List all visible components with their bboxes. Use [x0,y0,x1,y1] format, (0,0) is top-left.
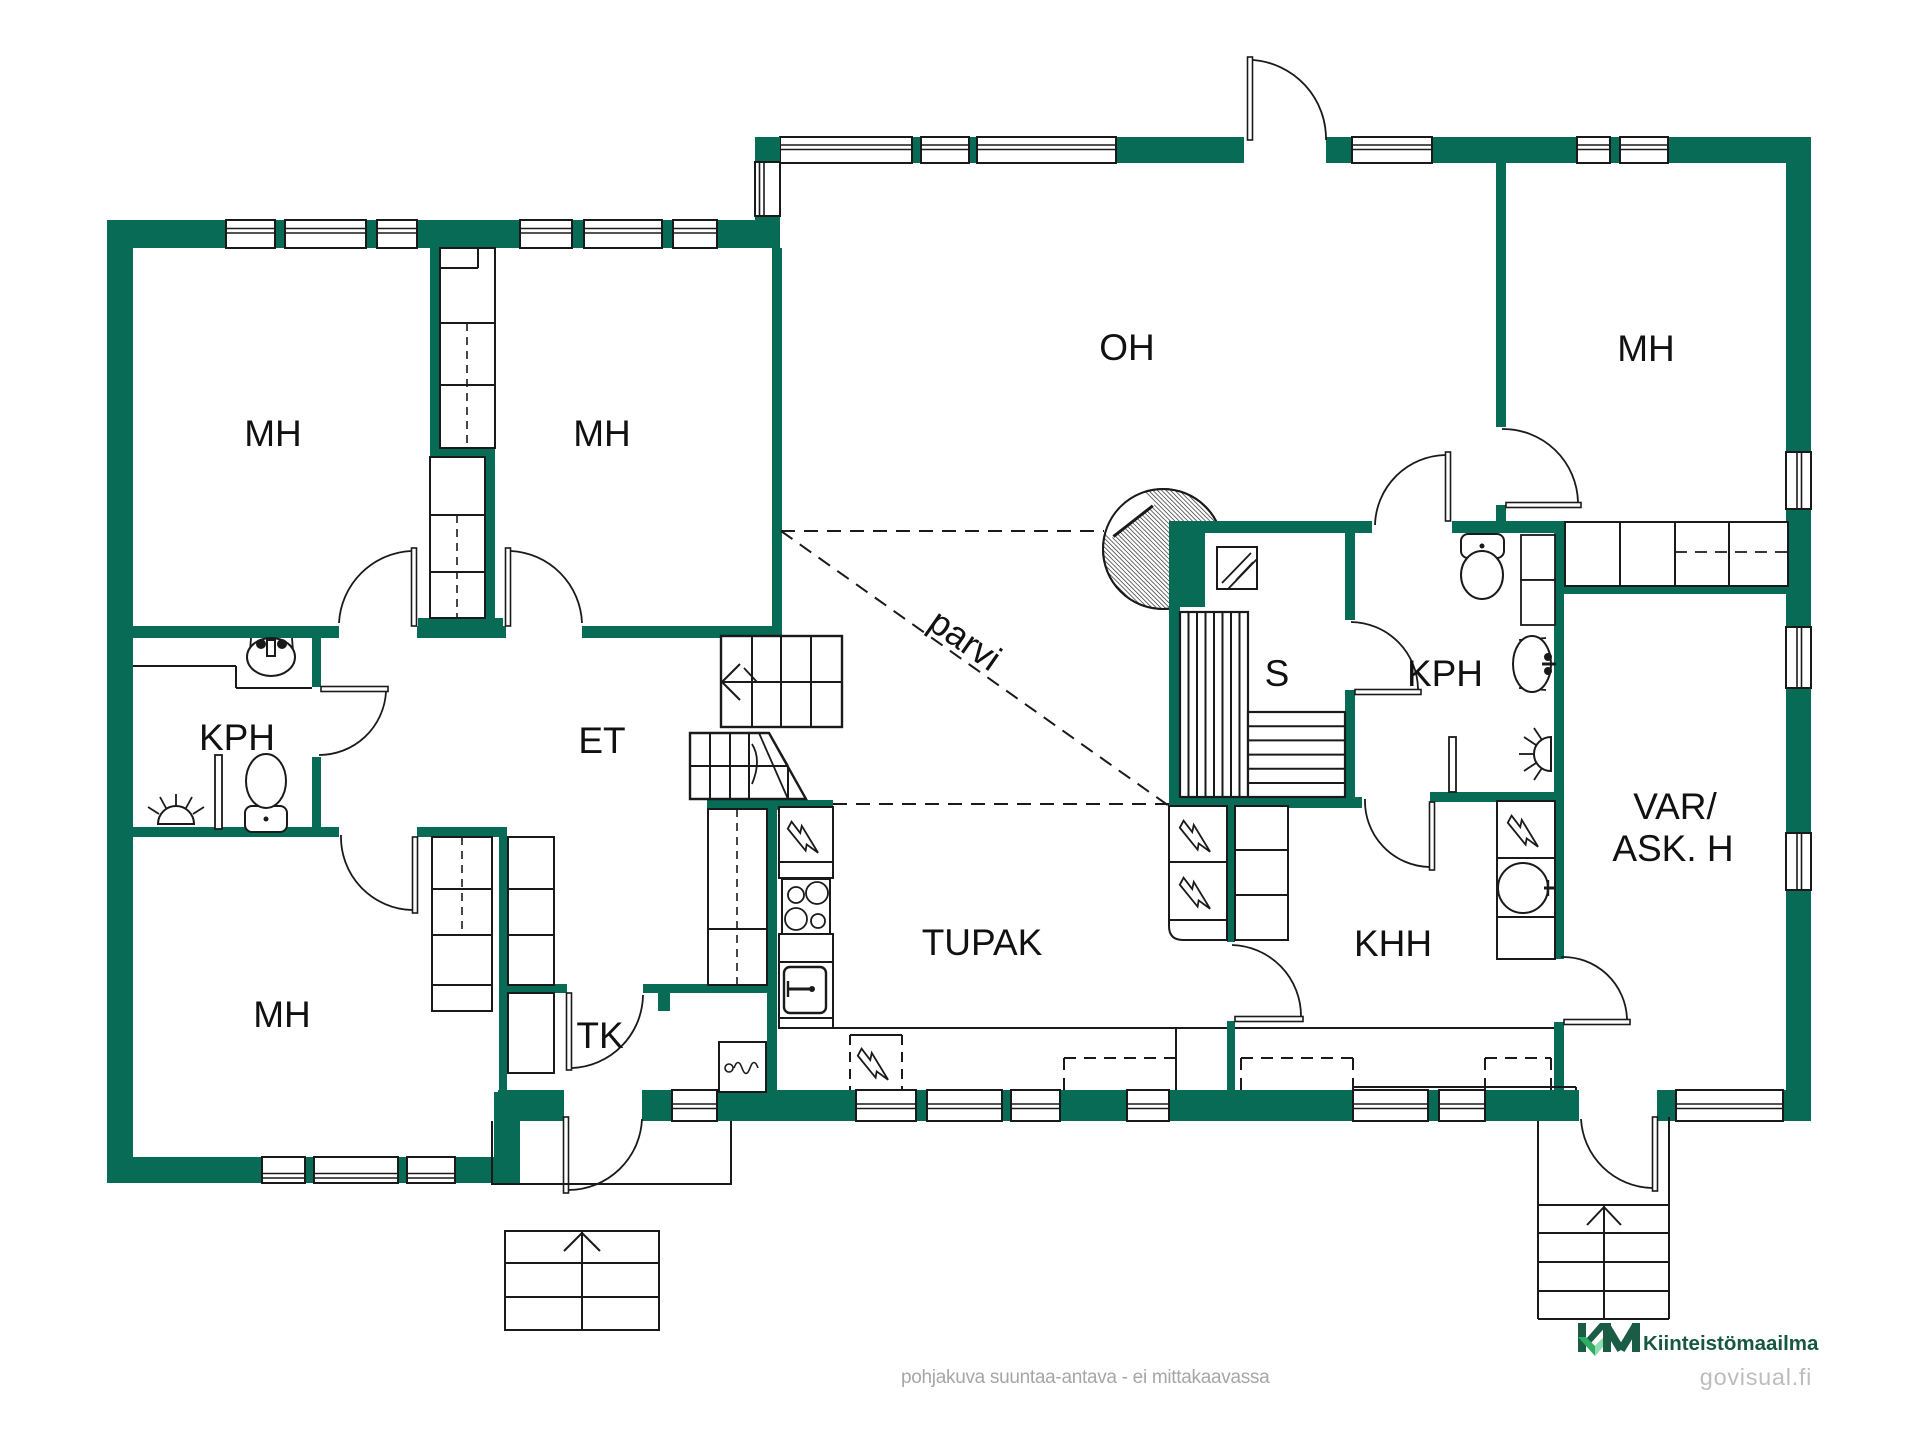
svg-text:govisual.fi: govisual.fi [1700,1364,1812,1390]
svg-text:MH: MH [253,994,311,1035]
svg-text:ET: ET [578,720,625,761]
svg-text:VAR/: VAR/ [1633,786,1717,827]
svg-text:MH: MH [244,413,302,454]
svg-text:ASK. H: ASK. H [1612,828,1733,869]
svg-text:MH: MH [573,413,631,454]
svg-text:OH: OH [1099,327,1155,368]
svg-text:S: S [1265,653,1290,694]
svg-text:pohjakuva suuntaa-antava - ei: pohjakuva suuntaa-antava - ei mittakaava… [901,1367,1270,1388]
svg-text:TUPAK: TUPAK [922,922,1043,963]
svg-text:Kiinteistömaailma: Kiinteistömaailma [1643,1332,1819,1355]
svg-text:KPH: KPH [199,717,275,758]
svg-text:KHH: KHH [1354,923,1432,964]
svg-text:MH: MH [1617,328,1675,369]
svg-text:TK: TK [576,1015,624,1056]
svg-text:KPH: KPH [1407,653,1483,694]
